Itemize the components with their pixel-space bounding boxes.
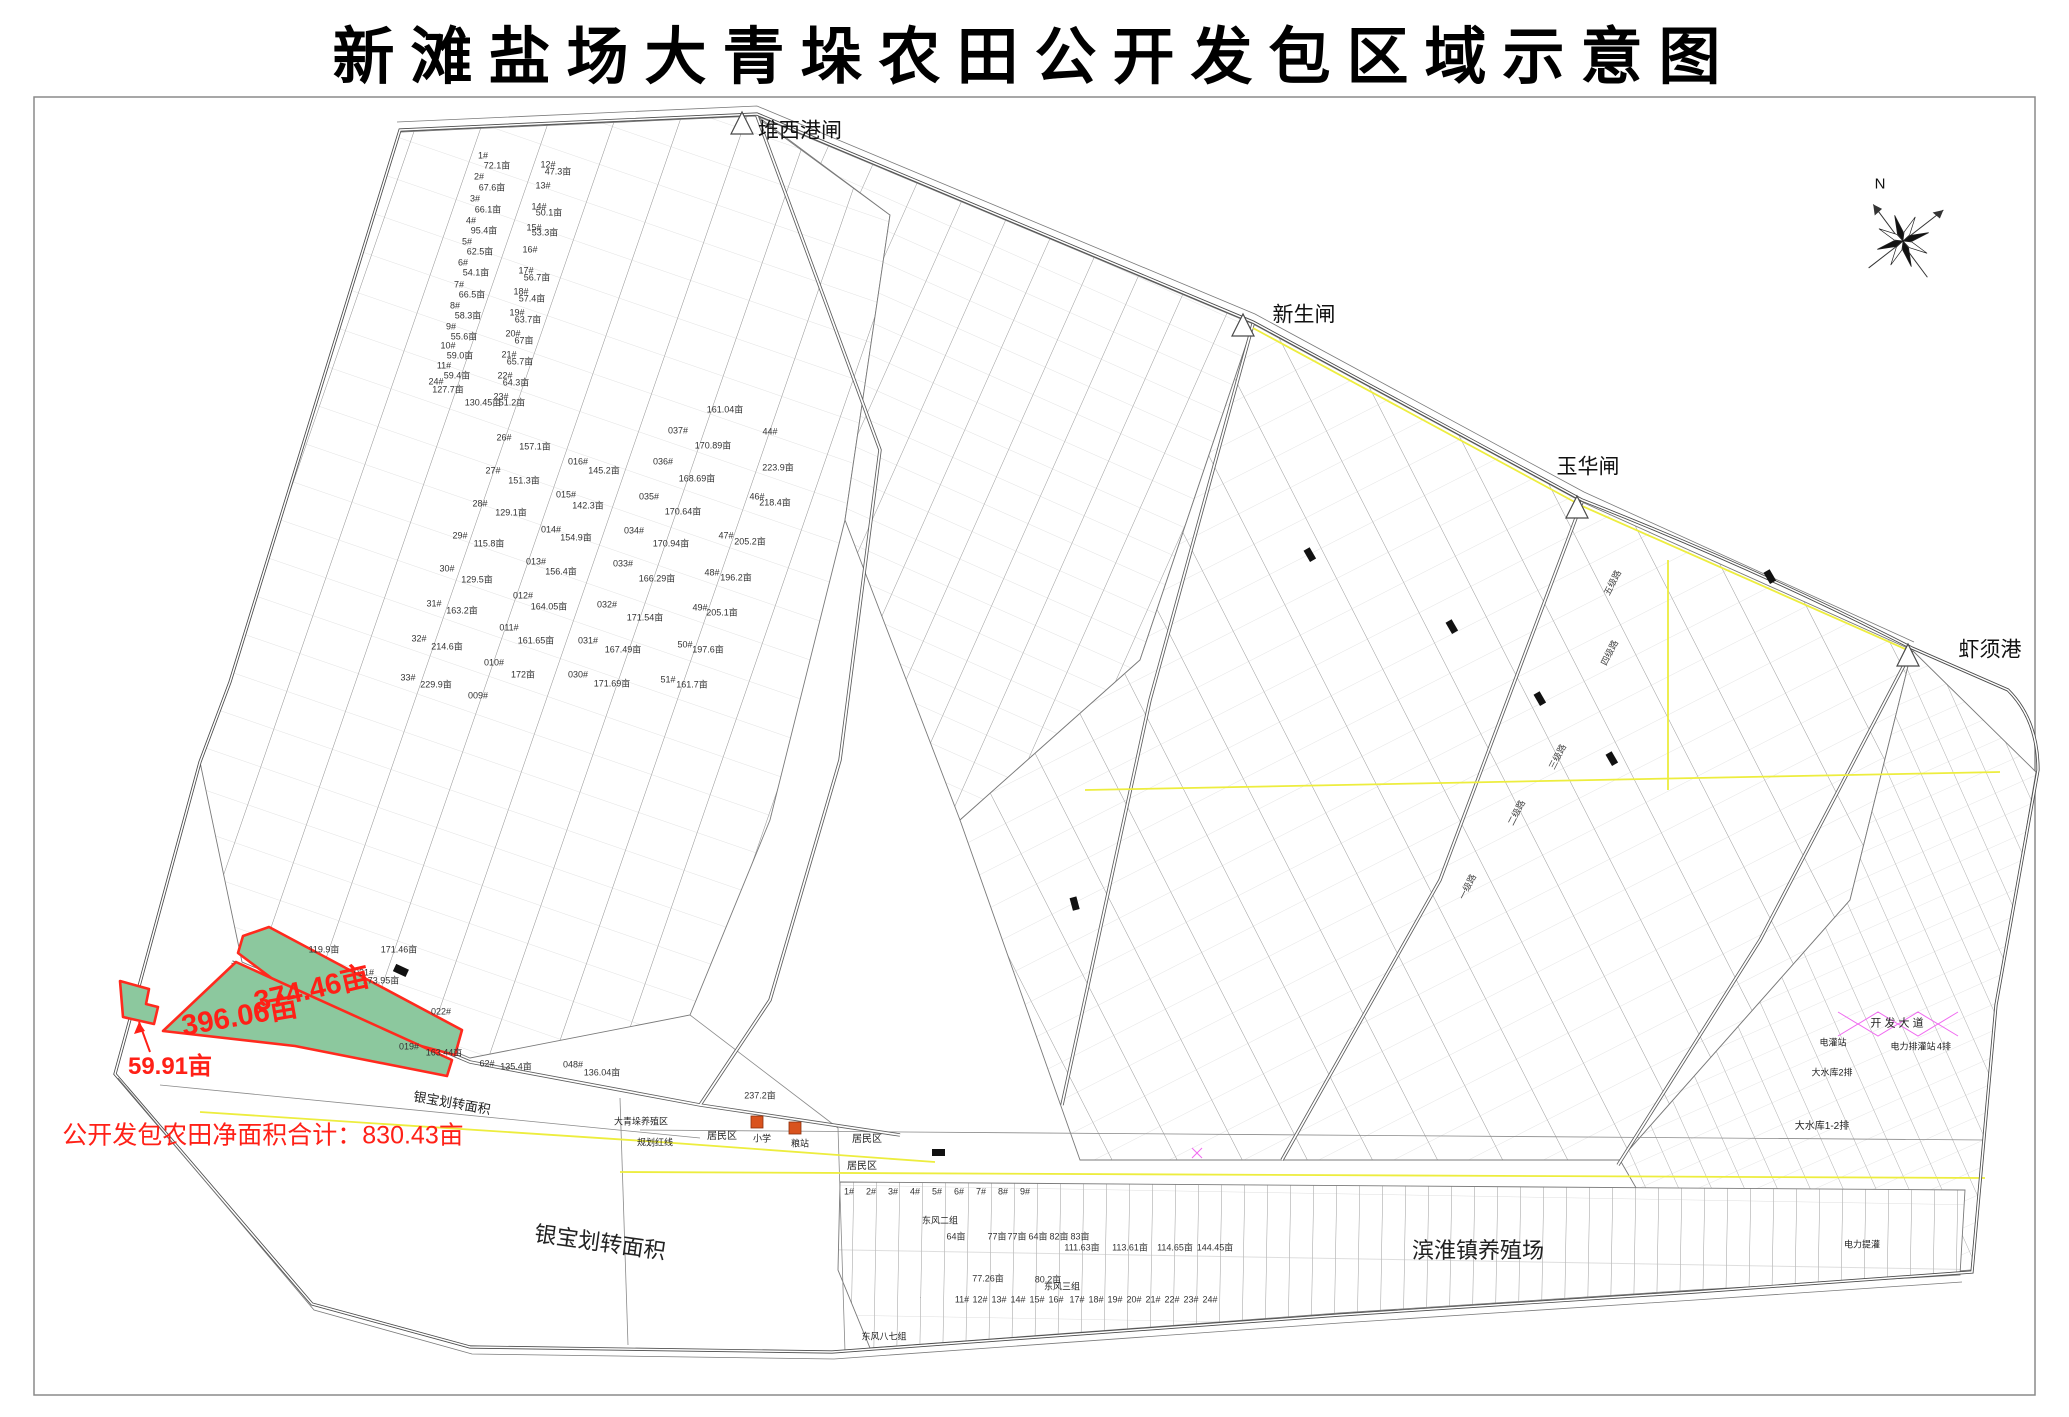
field-region-south-strip [838, 1182, 1965, 1348]
field-region-west [200, 116, 890, 1058]
parcel-59 [120, 981, 158, 1024]
school-mark [751, 1116, 763, 1128]
north-arrow [1850, 184, 1961, 293]
map-graphic [0, 0, 2069, 1417]
leader-arrow [134, 1022, 150, 1052]
field-regions [200, 116, 2036, 1348]
page: 新滩盐场大青垛农田公开发包区域示意图 [0, 0, 2069, 1417]
grain-station-mark [789, 1122, 801, 1134]
